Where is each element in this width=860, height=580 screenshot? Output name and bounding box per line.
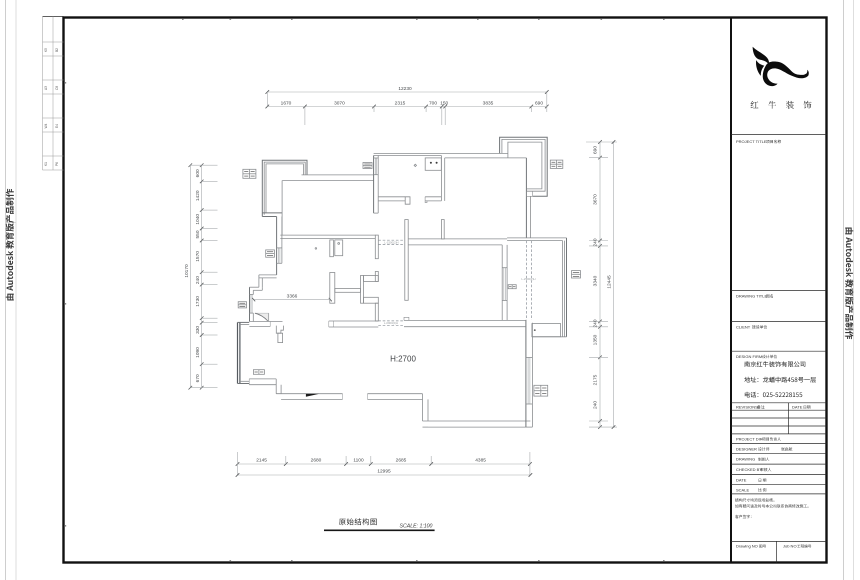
svg-text:1090: 1090 [195,347,201,358]
svg-text:2680: 2680 [311,457,322,463]
svg-text:1730: 1730 [195,296,201,307]
svg-text:PROJECT DIR: PROJECT DIR [736,437,763,442]
svg-text:SCALE: SCALE [736,487,749,492]
svg-text:W4: W4 [44,123,48,128]
svg-text:1350: 1350 [593,334,599,345]
svg-text:150: 150 [440,100,448,106]
svg-text:DRAWING: DRAWING [736,457,755,462]
svg-text:690: 690 [593,146,599,154]
svg-text:670: 670 [195,374,201,382]
svg-text:2175: 2175 [593,374,599,385]
svg-text:L-0900(2)H: L-0900(2)H [384,321,398,325]
svg-text:3366: 3366 [287,294,298,300]
svg-text:4385: 4385 [475,457,486,463]
svg-text:1420: 1420 [195,190,201,201]
svg-text:240: 240 [593,319,599,327]
svg-text:DESIGNER: DESIGNER [736,447,757,452]
svg-text:DATE: DATE [792,405,803,410]
svg-text:Job NO: Job NO [783,544,797,549]
svg-text:DRAWING TITLE: DRAWING TITLE [736,294,767,299]
svg-text:2145: 2145 [256,457,267,463]
svg-text:240: 240 [195,276,201,284]
svg-text:12995: 12995 [377,469,391,475]
svg-text:REVISIONS: REVISIONS [736,405,758,410]
svg-text:10170: 10170 [184,264,190,278]
svg-text:1670: 1670 [281,100,292,106]
svg-text:K5: K5 [44,48,48,52]
svg-text:3340: 3340 [593,275,599,286]
svg-text:A3: A3 [44,86,48,90]
svg-text:330: 330 [195,326,201,334]
svg-text:CLIENT: CLIENT [736,324,751,329]
svg-text:2315: 2315 [395,100,406,106]
svg-text:L-2900(2)H: L-2900(2)H [521,277,535,281]
svg-text:2685: 2685 [396,457,407,463]
svg-text:B2: B2 [55,48,59,52]
svg-text:1570: 1570 [195,251,201,262]
svg-text:3670: 3670 [593,194,599,205]
svg-text:1040: 1040 [195,214,201,225]
svg-text:1100: 1100 [353,457,364,463]
svg-text:E4: E4 [55,124,59,128]
svg-text:12445: 12445 [607,275,613,289]
svg-text:DESIGN FIRM: DESIGN FIRM [736,354,762,359]
svg-text:PROJECT TITLE: PROJECT TITLE [736,139,767,144]
svg-text:CHECKED BY: CHECKED BY [736,467,762,472]
svg-text:550: 550 [195,230,201,238]
svg-text:K1: K1 [44,162,48,166]
svg-text:690: 690 [535,100,543,106]
svg-text:12230: 12230 [398,86,412,92]
svg-text:240: 240 [593,401,599,409]
svg-text:240: 240 [593,238,599,246]
svg-text:C8: C8 [55,86,59,90]
svg-text:700: 700 [429,100,437,106]
svg-text:DATE: DATE [736,478,747,483]
svg-text:H:2700: H:2700 [390,355,416,364]
svg-text:P6: P6 [55,162,59,166]
svg-text:3070: 3070 [334,100,345,106]
svg-text:3835: 3835 [483,100,494,106]
svg-text:600: 600 [195,169,201,177]
svg-text:L-1500(2)H: L-1500(2)H [384,241,398,245]
svg-text:SCALE: 1:100: SCALE: 1:100 [400,524,433,530]
svg-text:Drawing NO: Drawing NO [736,544,758,549]
